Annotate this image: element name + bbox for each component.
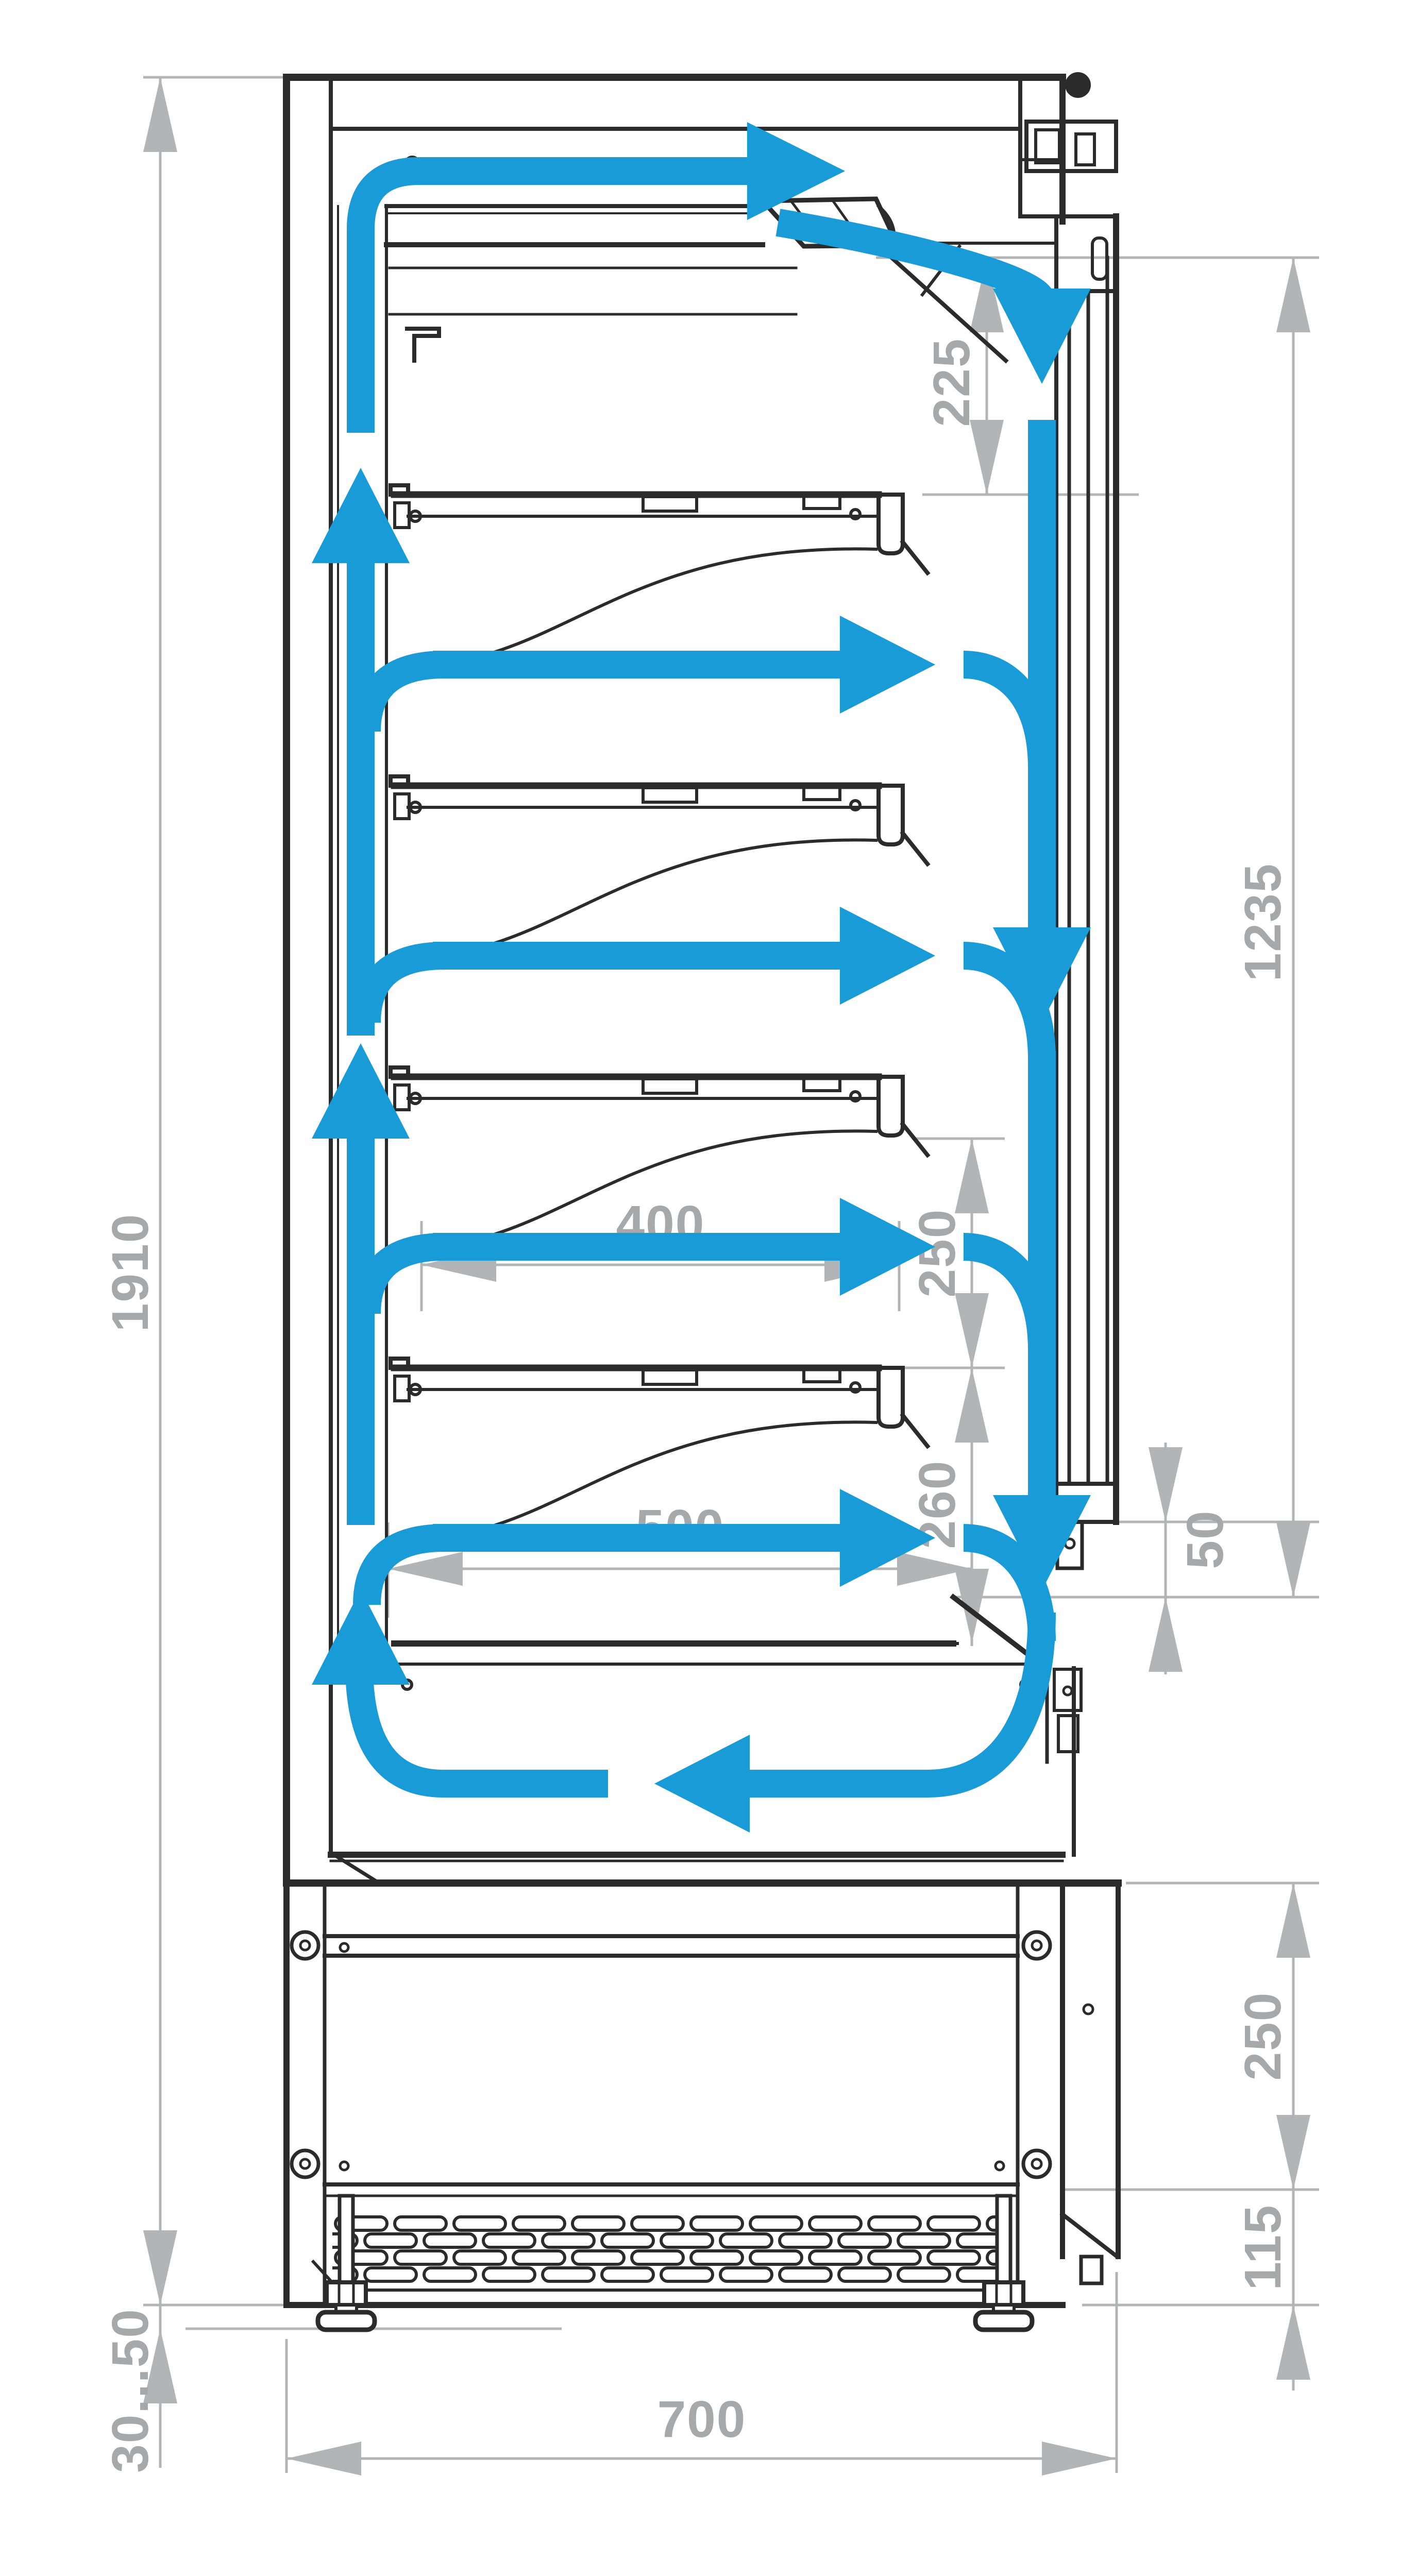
arrow-up-icon bbox=[143, 77, 177, 152]
label-return-air-gap: 50 bbox=[1176, 1510, 1234, 1569]
arrow-up-icon bbox=[1149, 1597, 1183, 1672]
label-vent-grille: 115 bbox=[1234, 2204, 1292, 2290]
cabinet-cross-section-drawing: 1910 30...50 700 225 1235 50 250 115 250… bbox=[0, 0, 1417, 2576]
dimension-arrowheads bbox=[143, 77, 1310, 2476]
arrow-up-icon bbox=[955, 1368, 989, 1443]
flow-arrow-left-icon bbox=[654, 1735, 750, 1833]
arrow-up-icon bbox=[1276, 2305, 1310, 2380]
arrow-down-icon bbox=[955, 1569, 989, 1643]
airflow-shelf-branch-2 bbox=[367, 956, 840, 1023]
label-overall-height: 1910 bbox=[102, 1213, 159, 1332]
arrow-up-icon bbox=[1276, 1883, 1310, 1958]
airflow-top-duct bbox=[361, 171, 747, 433]
arrow-down-icon bbox=[143, 2230, 177, 2305]
arrow-right-icon bbox=[1042, 2442, 1117, 2476]
label-foot-adjustment: 30...50 bbox=[102, 2308, 159, 2473]
arrow-down-icon bbox=[1276, 2115, 1310, 2190]
label-display-opening: 1235 bbox=[1234, 863, 1292, 981]
label-machine-compartment: 250 bbox=[1234, 1992, 1292, 2081]
flow-arrow-right-icon bbox=[840, 907, 935, 1005]
airflow-shelf-branch-3 bbox=[367, 1247, 840, 1314]
arrow-down-icon bbox=[970, 420, 1004, 495]
lamp-bracket bbox=[407, 329, 439, 361]
arrow-down-icon bbox=[955, 1293, 989, 1368]
hinge-pin-icon bbox=[1065, 72, 1091, 98]
flow-arrow-up-icon bbox=[312, 1589, 410, 1685]
arrow-left-icon bbox=[286, 2442, 361, 2476]
extension-lines bbox=[143, 77, 1319, 2473]
ventilation-grille bbox=[332, 2215, 1011, 2283]
flow-arrow-right-icon bbox=[840, 616, 935, 714]
arrow-up-icon bbox=[1276, 258, 1310, 332]
arrow-down-icon bbox=[1276, 1522, 1310, 1597]
label-overall-depth: 700 bbox=[657, 2391, 747, 2448]
label-top-gap: 225 bbox=[923, 338, 981, 427]
arrow-up-icon bbox=[955, 1139, 989, 1213]
machine-compartment bbox=[286, 1883, 1118, 2330]
top-canopy bbox=[286, 77, 1062, 361]
airflow-shelf-branch-1 bbox=[367, 665, 840, 732]
base-well bbox=[286, 1597, 1118, 1883]
glass-door[interactable] bbox=[1056, 216, 1116, 1568]
airflow-return-curve bbox=[750, 1613, 1042, 1784]
technical-diagram-canvas: 1910 30...50 700 225 1235 50 250 115 250… bbox=[0, 0, 1417, 2576]
flow-arrow-down-icon bbox=[993, 289, 1091, 384]
flow-arrow-right-icon bbox=[747, 122, 845, 220]
